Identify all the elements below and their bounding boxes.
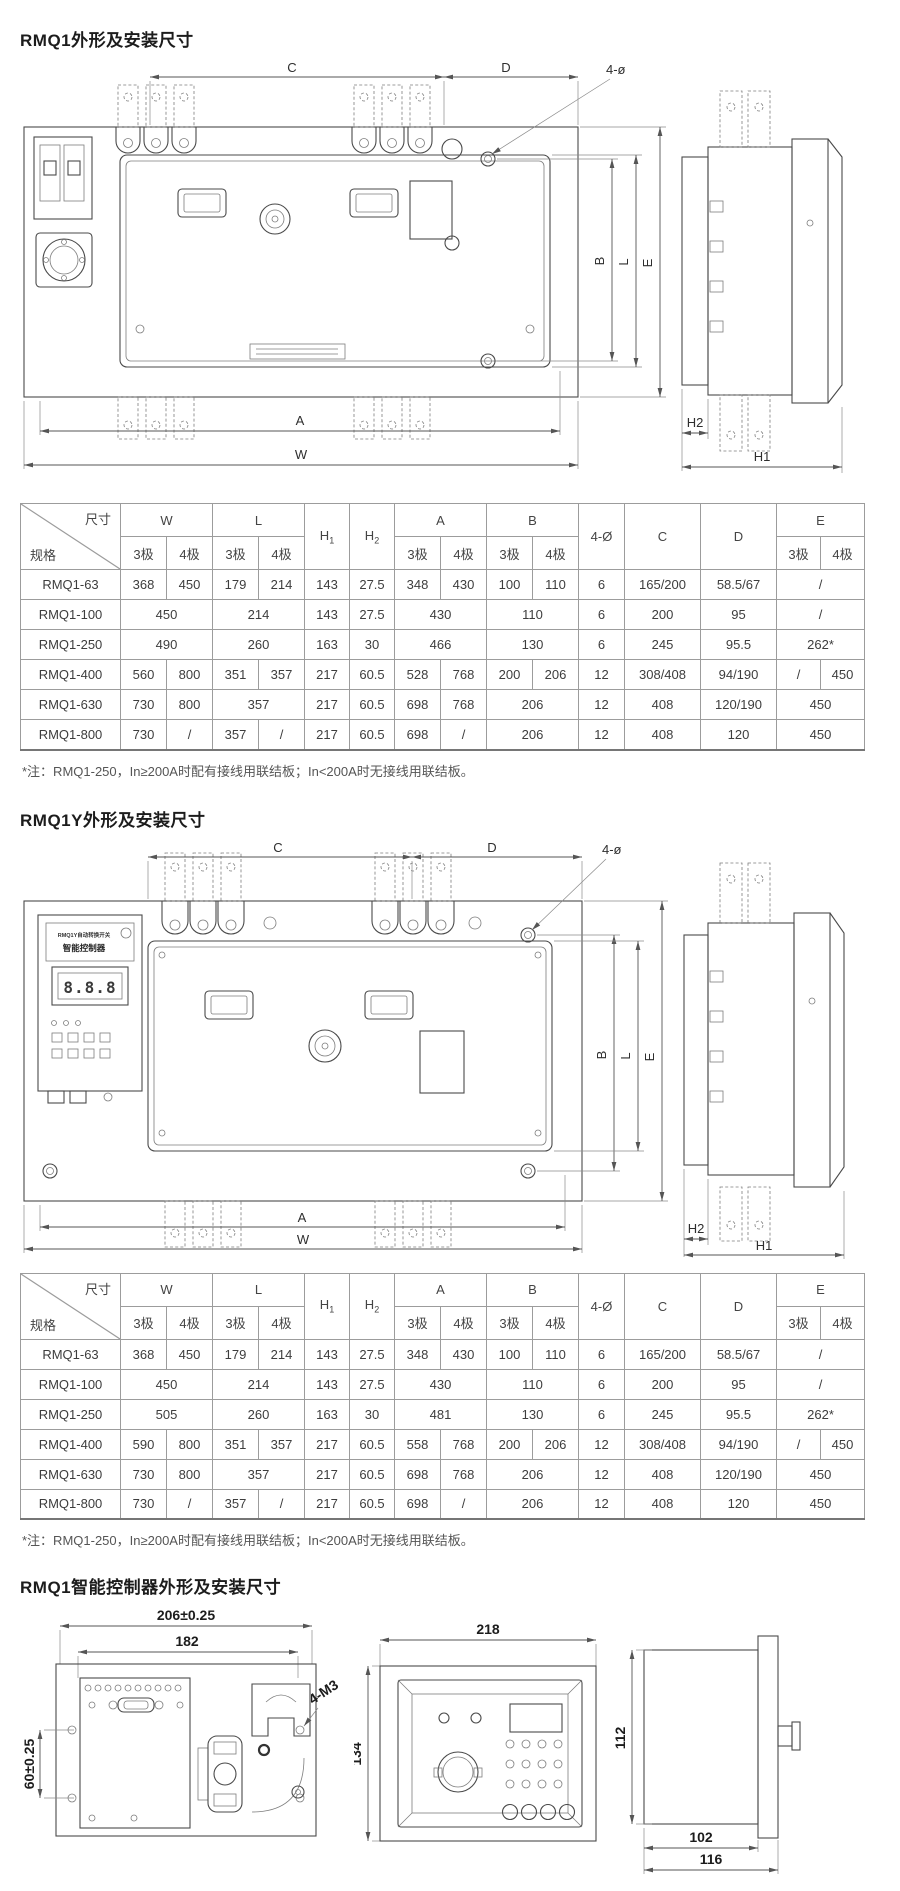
value-cell: 94/190	[701, 660, 777, 690]
pole-subheader: 3极	[487, 537, 533, 570]
section-title-rmq1y: RMQ1Y外形及安装尺寸	[20, 806, 880, 831]
value-cell: 450	[167, 1339, 213, 1369]
value-cell: 260	[213, 630, 305, 660]
value-cell: 450	[167, 570, 213, 600]
controller-side-view-drawing: 112 102 116	[608, 1608, 880, 1881]
value-cell: 800	[167, 690, 213, 720]
controller-drawings-row: 206±0.25 182 60±0.25	[20, 1608, 880, 1881]
dim-hole-label: 4-ø	[606, 62, 626, 77]
value-cell: 143	[305, 570, 350, 600]
round-connector	[36, 233, 92, 287]
value-cell: 206	[487, 690, 579, 720]
pole-subheader: 3极	[213, 537, 259, 570]
dim-h2-label: H2	[687, 415, 704, 430]
value-cell: 217	[305, 690, 350, 720]
dim-e-label: E	[642, 1052, 657, 1061]
table-row: RMQ1-25050526016330481130624595.5262*	[21, 1399, 865, 1429]
controller-body	[644, 1650, 758, 1824]
column-header: W	[121, 1273, 213, 1306]
pole-subheader: 4极	[259, 1306, 305, 1339]
rmq1-side-view: H2 H1	[682, 91, 842, 473]
pole-subheader: 4极	[441, 537, 487, 570]
value-cell: /	[777, 1339, 865, 1369]
dim-back-inner-label: 182	[175, 1633, 199, 1649]
column-header: B	[487, 504, 579, 537]
value-cell: 800	[167, 1429, 213, 1459]
value-cell: 200	[487, 1429, 533, 1459]
value-cell: 768	[441, 660, 487, 690]
value-cell: 27.5	[350, 570, 395, 600]
value-cell: 143	[305, 1369, 350, 1399]
value-cell: /	[441, 720, 487, 750]
value-cell: 60.5	[350, 1459, 395, 1489]
value-cell: 163	[305, 1399, 350, 1429]
pole-subheader: 3极	[121, 1306, 167, 1339]
value-cell: 60.5	[350, 690, 395, 720]
cert-logo-icon	[121, 928, 131, 938]
front-display	[510, 1704, 562, 1732]
value-cell: 698	[395, 720, 441, 750]
column-header: E	[777, 504, 865, 537]
value-cell: 262*	[777, 630, 865, 660]
value-cell: 12	[579, 660, 625, 690]
pole-subheader: 3极	[121, 537, 167, 570]
value-cell: 12	[579, 720, 625, 750]
intelligent-controller-box: RMQ1Y自动转换开关 智能控制器 8.8.8	[38, 915, 142, 1103]
pole-subheader: 3极	[213, 1306, 259, 1339]
value-cell: 110	[533, 1339, 579, 1369]
switch-body	[120, 155, 550, 367]
value-cell: 12	[579, 1459, 625, 1489]
rmq1y-outline-drawing: RMQ1Y自动转换开关 智能控制器 8.8.8	[20, 841, 880, 1261]
dim-h2-label: H2	[688, 1221, 705, 1236]
value-cell: /	[777, 660, 821, 690]
table-row: RMQ1-40059080035135721760.55587682002061…	[21, 1429, 865, 1459]
value-cell: 450	[821, 660, 865, 690]
value-cell: 179	[213, 570, 259, 600]
pole-subheader: 3极	[487, 1306, 533, 1339]
value-cell: 698	[395, 690, 441, 720]
column-header: B	[487, 1273, 579, 1306]
table-row: RMQ1-10045021414327.5430110620095/	[21, 600, 865, 630]
value-cell: 217	[305, 720, 350, 750]
value-cell: 206	[533, 660, 579, 690]
value-cell: 368	[121, 570, 167, 600]
value-cell: 120	[701, 720, 777, 750]
dim-e-label: E	[640, 258, 655, 267]
column-header: D	[701, 504, 777, 570]
value-cell: 110	[487, 600, 579, 630]
value-cell: 27.5	[350, 600, 395, 630]
switch-body	[148, 941, 552, 1151]
controller-back-view-drawing: 206±0.25 182 60±0.25	[20, 1608, 350, 1881]
value-cell: 143	[305, 1339, 350, 1369]
value-cell: 60.5	[350, 660, 395, 690]
pole-subheader: 4极	[167, 1306, 213, 1339]
dim-h1-label: H1	[754, 449, 771, 464]
value-cell: 430	[441, 1339, 487, 1369]
value-cell: 490	[121, 630, 213, 660]
value-cell: 450	[777, 1489, 865, 1519]
value-cell: 408	[625, 1489, 701, 1519]
value-cell: 60.5	[350, 1489, 395, 1519]
dim-front-width-label: 218	[476, 1621, 500, 1637]
value-cell: 430	[395, 600, 487, 630]
value-cell: 560	[121, 660, 167, 690]
model-cell: RMQ1-250	[21, 630, 121, 660]
model-cell: RMQ1-63	[21, 1339, 121, 1369]
dim-screws-label: 4-M3	[306, 1676, 342, 1707]
value-cell: 768	[441, 1459, 487, 1489]
value-cell: 466	[395, 630, 487, 660]
dim-b-label: B	[594, 1050, 609, 1059]
value-cell: 505	[121, 1399, 213, 1429]
model-cell: RMQ1-250	[21, 1399, 121, 1429]
shaft-knob	[309, 1030, 341, 1062]
value-cell: 179	[213, 1339, 259, 1369]
value-cell: 130	[487, 630, 579, 660]
value-cell: 245	[625, 1399, 701, 1429]
pole-subheader: 4极	[821, 537, 865, 570]
value-cell: 351	[213, 1429, 259, 1459]
value-cell: 27.5	[350, 1339, 395, 1369]
value-cell: 558	[395, 1429, 441, 1459]
model-cell: RMQ1-100	[21, 600, 121, 630]
rmq1-outline-drawing: C D 4-ø B L E A W	[20, 61, 880, 491]
value-cell: 95.5	[701, 630, 777, 660]
rmq1-dimension-table: 尺寸规格WLH1H2AB4-ØCDE3极4极3极4极3极4极3极4极3极4极RM…	[20, 503, 865, 751]
value-cell: 590	[121, 1429, 167, 1459]
value-cell: 58.5/67	[701, 570, 777, 600]
dim-back-height-label: 60±0.25	[21, 1739, 37, 1790]
table-row: RMQ1-25049026016330466130624595.5262*	[21, 630, 865, 660]
value-cell: 6	[579, 630, 625, 660]
value-cell: 200	[625, 600, 701, 630]
value-cell: 6	[579, 1339, 625, 1369]
value-cell: 262*	[777, 1399, 865, 1429]
table-row: RMQ1-6336845017921414327.534843010011061…	[21, 570, 865, 600]
section-title-controller: RMQ1智能控制器外形及安装尺寸	[20, 1573, 880, 1598]
column-header: H1	[305, 1273, 350, 1339]
controller-front-view-drawing: 218 134	[354, 1608, 604, 1881]
front-flange	[758, 1636, 778, 1838]
value-cell: 450	[121, 1369, 213, 1399]
pole-subheader: 3极	[777, 1306, 821, 1339]
column-header: H1	[305, 504, 350, 570]
value-cell: 730	[121, 1459, 167, 1489]
mounting-hole	[521, 928, 535, 942]
db9-connector	[118, 1698, 154, 1712]
column-header: L	[213, 1273, 305, 1306]
pole-subheader: 3极	[395, 1306, 441, 1339]
value-cell: /	[777, 1429, 821, 1459]
value-cell: 768	[441, 1429, 487, 1459]
dim-b-label: B	[592, 257, 607, 266]
value-cell: 6	[579, 1369, 625, 1399]
table-row: RMQ1-800730/357/21760.5698/2061240812045…	[21, 720, 865, 750]
rmq1y-dimension-table: 尺寸规格WLH1H2AB4-ØCDE3极4极3极4极3极4极3极4极3极4极RM…	[20, 1273, 865, 1521]
controller-brand-text: RMQ1Y自动转换开关	[58, 931, 111, 939]
pole-subheader: 4极	[441, 1306, 487, 1339]
value-cell: 30	[350, 1399, 395, 1429]
value-cell: 214	[213, 1369, 305, 1399]
value-cell: 450	[777, 720, 865, 750]
value-cell: 217	[305, 1429, 350, 1459]
dim-l-label: L	[616, 258, 631, 265]
value-cell: 6	[579, 600, 625, 630]
value-cell: /	[777, 1369, 865, 1399]
value-cell: 30	[350, 630, 395, 660]
value-cell: 348	[395, 570, 441, 600]
value-cell: /	[259, 720, 305, 750]
value-cell: 308/408	[625, 660, 701, 690]
section-title-rmq1: RMQ1外形及安装尺寸	[20, 26, 880, 51]
value-cell: 357	[213, 1489, 259, 1519]
model-cell: RMQ1-630	[21, 690, 121, 720]
pole-subheader: 4极	[533, 1306, 579, 1339]
pole-subheader: 4极	[533, 537, 579, 570]
value-cell: 481	[395, 1399, 487, 1429]
value-cell: 698	[395, 1459, 441, 1489]
column-header: W	[121, 504, 213, 537]
value-cell: 12	[579, 1429, 625, 1459]
value-cell: /	[441, 1489, 487, 1519]
value-cell: 450	[821, 1429, 865, 1459]
column-header: A	[395, 1273, 487, 1306]
value-cell: 120/190	[701, 1459, 777, 1489]
column-header: H2	[350, 1273, 395, 1339]
pole-subheader: 4极	[259, 537, 305, 570]
table-row: RMQ1-40056080035135721760.55287682002061…	[21, 660, 865, 690]
value-cell: 730	[121, 690, 167, 720]
pole-subheader: 4极	[167, 537, 213, 570]
model-cell: RMQ1-800	[21, 720, 121, 750]
value-cell: 214	[213, 600, 305, 630]
mounting-hole	[481, 152, 495, 166]
model-cell: RMQ1-800	[21, 1489, 121, 1519]
table-corner-header: 尺寸规格	[21, 1273, 121, 1339]
value-cell: 450	[777, 690, 865, 720]
value-cell: 214	[259, 570, 305, 600]
dim-c-label: C	[273, 841, 282, 855]
value-cell: 200	[487, 660, 533, 690]
value-cell: 217	[305, 1459, 350, 1489]
table-row: RMQ1-800730/357/21760.5698/2061240812045…	[21, 1489, 865, 1519]
dim-l-label: L	[618, 1052, 633, 1059]
value-cell: 165/200	[625, 1339, 701, 1369]
value-cell: 730	[121, 720, 167, 750]
value-cell: /	[777, 570, 865, 600]
terminal-plug	[208, 1736, 242, 1812]
model-cell: RMQ1-400	[21, 1429, 121, 1459]
value-cell: 206	[487, 1459, 579, 1489]
value-cell: 163	[305, 630, 350, 660]
value-cell: 120/190	[701, 690, 777, 720]
dim-h1-label: H1	[756, 1238, 773, 1253]
table-row: RMQ1-63073080035721760.56987682061240812…	[21, 690, 865, 720]
value-cell: 308/408	[625, 1429, 701, 1459]
dim-front-height-label: 134	[354, 1742, 364, 1766]
rmq1y-table-note: *注：RMQ1-250，In≥200A时配有接线用联结板；In<200A时无接线…	[22, 1530, 880, 1549]
value-cell: 730	[121, 1489, 167, 1519]
dim-side-height-label: 112	[612, 1726, 628, 1749]
column-header: L	[213, 504, 305, 537]
value-cell: 143	[305, 600, 350, 630]
dim-d-label: D	[487, 841, 496, 855]
value-cell: 450	[777, 1459, 865, 1489]
value-cell: 245	[625, 630, 701, 660]
dim-side-outer-label: 116	[700, 1851, 723, 1867]
value-cell: 357	[213, 1459, 305, 1489]
value-cell: 95	[701, 1369, 777, 1399]
column-header: D	[701, 1273, 777, 1339]
value-cell: 130	[487, 1399, 579, 1429]
value-cell: /	[167, 1489, 213, 1519]
value-cell: 450	[121, 600, 213, 630]
dim-w-label: W	[295, 447, 308, 462]
column-header: A	[395, 504, 487, 537]
value-cell: 528	[395, 660, 441, 690]
value-cell: 357	[213, 720, 259, 750]
nameplate	[250, 344, 345, 359]
rmq1-front-view: C D 4-ø B L E A W	[24, 61, 666, 469]
value-cell: 110	[533, 570, 579, 600]
value-cell: 408	[625, 1459, 701, 1489]
value-cell: 698	[395, 1489, 441, 1519]
mounting-hole	[43, 1164, 57, 1178]
value-cell: 27.5	[350, 1369, 395, 1399]
column-header: 4-Ø	[579, 1273, 625, 1339]
value-cell: 217	[305, 660, 350, 690]
value-cell: 165/200	[625, 570, 701, 600]
value-cell: 100	[487, 570, 533, 600]
rmq1y-side-view: H2 H1	[684, 863, 844, 1259]
controller-name-text: 智能控制器	[62, 943, 106, 953]
column-header: E	[777, 1273, 865, 1306]
shaft-knob	[260, 204, 290, 234]
value-cell: 6	[579, 1399, 625, 1429]
table-row: RMQ1-63073080035721760.56987682061240812…	[21, 1459, 865, 1489]
value-cell: 357	[259, 660, 305, 690]
value-cell: 260	[213, 1399, 305, 1429]
value-cell: 12	[579, 690, 625, 720]
value-cell: 206	[487, 1489, 579, 1519]
display-digits: 8.8.8	[63, 978, 116, 997]
table-corner-header: 尺寸规格	[21, 504, 121, 570]
value-cell: 800	[167, 1459, 213, 1489]
value-cell: 357	[213, 690, 305, 720]
pole-subheader: 3极	[395, 537, 441, 570]
value-cell: 357	[259, 1429, 305, 1459]
value-cell: 800	[167, 660, 213, 690]
dim-back-outer-label: 206±0.25	[157, 1608, 216, 1623]
value-cell: 110	[487, 1369, 579, 1399]
model-cell: RMQ1-630	[21, 1459, 121, 1489]
rmq1-table-note: *注：RMQ1-250，In≥200A时配有接线用联结板；In<200A时无接线…	[22, 761, 880, 780]
spec-document-page: RMQ1外形及安装尺寸	[0, 0, 900, 1891]
value-cell: 408	[625, 720, 701, 750]
value-cell: 430	[395, 1369, 487, 1399]
dim-w-label: W	[297, 1232, 310, 1247]
pole-subheader: 4极	[821, 1306, 865, 1339]
value-cell: 120	[701, 1489, 777, 1519]
aux-breaker	[34, 137, 92, 219]
value-cell: 95.5	[701, 1399, 777, 1429]
value-cell: 12	[579, 1489, 625, 1519]
model-cell: RMQ1-63	[21, 570, 121, 600]
column-header: C	[625, 1273, 701, 1339]
mounting-hole	[521, 1164, 535, 1178]
dim-hole-label: 4-ø	[602, 842, 622, 857]
pole-subheader: 3极	[777, 537, 821, 570]
value-cell: 768	[441, 690, 487, 720]
dim-d-label: D	[501, 61, 510, 75]
value-cell: 95	[701, 600, 777, 630]
dim-c-label: C	[287, 61, 296, 75]
value-cell: 60.5	[350, 1429, 395, 1459]
value-cell: 408	[625, 690, 701, 720]
column-header: 4-Ø	[579, 504, 625, 570]
value-cell: /	[167, 720, 213, 750]
value-cell: 94/190	[701, 1429, 777, 1459]
dim-a-label: A	[296, 413, 305, 428]
value-cell: 100	[487, 1339, 533, 1369]
value-cell: 348	[395, 1339, 441, 1369]
value-cell: 58.5/67	[701, 1339, 777, 1369]
value-cell: 6	[579, 570, 625, 600]
value-cell: /	[777, 600, 865, 630]
value-cell: /	[259, 1489, 305, 1519]
front-knob	[438, 1752, 478, 1792]
value-cell: 60.5	[350, 720, 395, 750]
value-cell: 351	[213, 660, 259, 690]
dim-a-label: A	[298, 1210, 307, 1225]
value-cell: 430	[441, 570, 487, 600]
value-cell: 200	[625, 1369, 701, 1399]
value-cell: 206	[487, 720, 579, 750]
value-cell: 214	[259, 1339, 305, 1369]
table-row: RMQ1-10045021414327.5430110620095/	[21, 1369, 865, 1399]
table-row: RMQ1-6336845017921414327.534843010011061…	[21, 1339, 865, 1369]
model-cell: RMQ1-100	[21, 1369, 121, 1399]
rmq1y-front-view: RMQ1Y自动转换开关 智能控制器 8.8.8	[24, 841, 668, 1253]
value-cell: 206	[533, 1429, 579, 1459]
value-cell: 217	[305, 1489, 350, 1519]
column-header: H2	[350, 504, 395, 570]
model-cell: RMQ1-400	[21, 660, 121, 690]
column-header: C	[625, 504, 701, 570]
value-cell: 368	[121, 1339, 167, 1369]
